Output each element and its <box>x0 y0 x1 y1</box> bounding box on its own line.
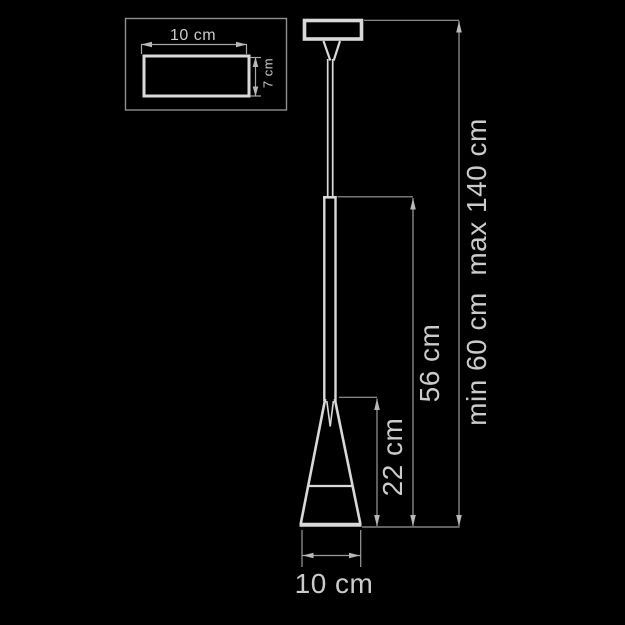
shade-diameter-label: 10 cm <box>295 570 374 598</box>
arrow-left-icon <box>141 42 152 48</box>
arrow-up-icon <box>410 198 416 210</box>
arrow-up-icon <box>374 399 380 411</box>
diagram-linework <box>0 0 625 625</box>
lamp-dimension-diagram: 10 cm 7 cm 22 cm 56 cm min 60 cm max 140… <box>0 0 625 625</box>
lamp-stem <box>323 196 337 401</box>
arrow-up-icon <box>253 57 259 67</box>
body-height-label: 56 cm <box>416 324 444 403</box>
detail-width-dimension <box>141 45 247 55</box>
lamp-elevation <box>300 21 362 525</box>
cone-shade <box>300 399 362 525</box>
arrow-down-icon <box>374 515 380 527</box>
arrow-right-icon <box>349 553 360 559</box>
arrow-down-icon <box>456 515 462 527</box>
pendant-canopy <box>305 21 362 40</box>
canopy-neck <box>324 41 341 61</box>
arrow-right-icon <box>236 42 247 48</box>
detail-height-label: 7 cm <box>262 58 275 88</box>
detail-width-label: 10 cm <box>170 28 216 44</box>
arrow-down-icon <box>253 87 259 97</box>
arrow-up-icon <box>456 21 462 33</box>
arrow-left-icon <box>303 553 314 559</box>
canopy-top-view <box>144 56 249 96</box>
arrow-down-icon <box>410 515 416 527</box>
suspension-range-label: min 60 cm max 140 cm <box>463 118 491 426</box>
suspension-wire <box>328 59 333 197</box>
shade-height-label: 22 cm <box>379 418 407 497</box>
